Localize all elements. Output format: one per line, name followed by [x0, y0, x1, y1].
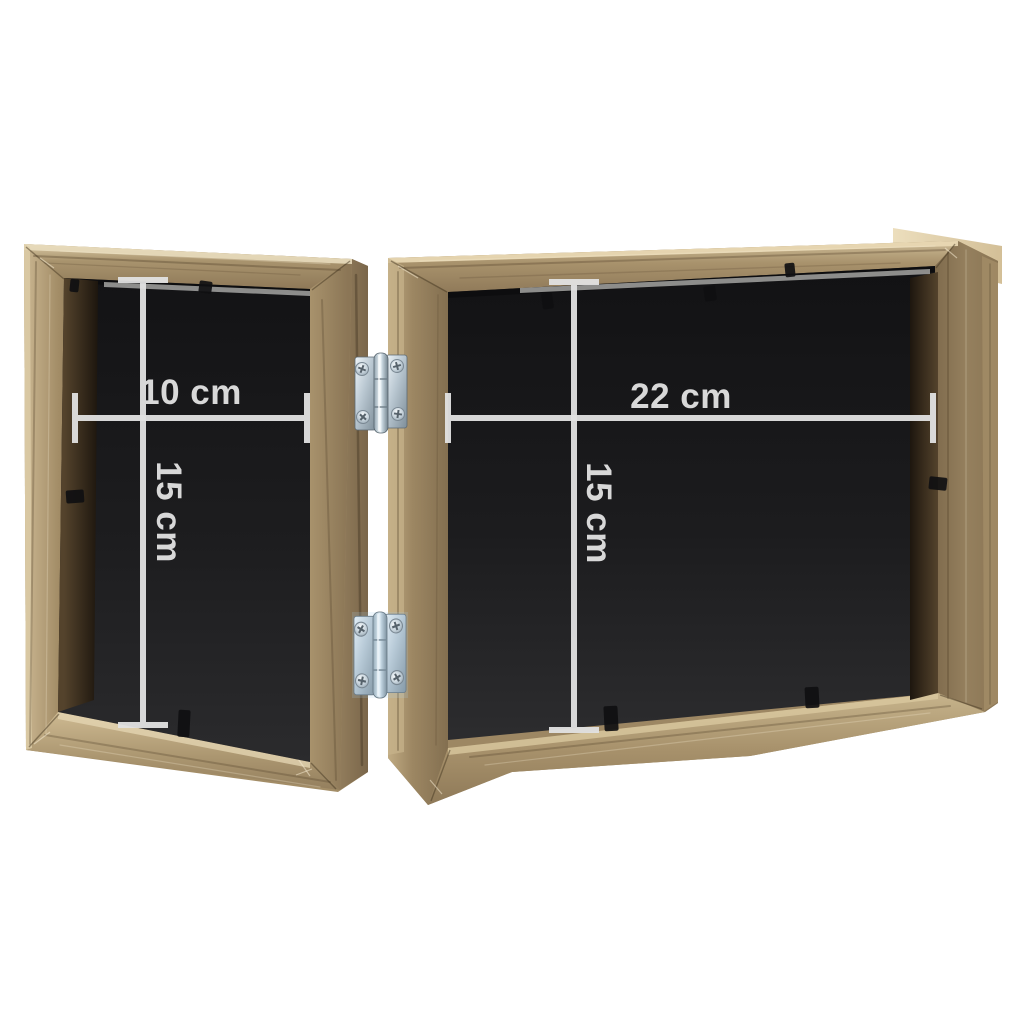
clip	[198, 280, 213, 294]
left-height-label: 15 cm	[149, 461, 188, 563]
product-photo-double-frame: 10 cm 15 cm 22 cm 15 cm	[0, 0, 1024, 1024]
left-frame	[24, 244, 368, 792]
right-height-label: 15 cm	[579, 462, 618, 564]
hinge-top	[354, 353, 407, 433]
dimension-cap	[118, 277, 168, 283]
clip	[66, 489, 85, 503]
dimension-cap	[549, 727, 599, 733]
clip	[784, 263, 795, 278]
hinge-barrel	[374, 353, 388, 433]
clip	[804, 687, 819, 709]
scene: 10 cm 15 cm 22 cm 15 cm	[0, 0, 1024, 1024]
clip	[928, 476, 947, 491]
left-width-label: 10 cm	[140, 373, 242, 412]
clip	[603, 706, 618, 732]
dimension-cap	[549, 279, 599, 285]
hinge-bottom	[352, 612, 408, 698]
dimension-cap	[304, 393, 310, 443]
clip	[177, 710, 190, 738]
dimension-cap	[445, 393, 451, 443]
right-frame-backing-board	[448, 266, 938, 740]
dimension-cap	[118, 722, 168, 728]
right-frame	[388, 228, 1002, 805]
dimension-cap	[72, 393, 78, 443]
dimension-line-vertical	[571, 282, 577, 731]
clip	[69, 279, 79, 293]
clip	[541, 292, 554, 309]
dimension-cap	[930, 393, 936, 443]
clip	[703, 285, 717, 302]
right-width-label: 22 cm	[630, 377, 732, 416]
dimension-line-vertical	[140, 281, 146, 725]
dimension-line-horizontal	[75, 415, 307, 421]
